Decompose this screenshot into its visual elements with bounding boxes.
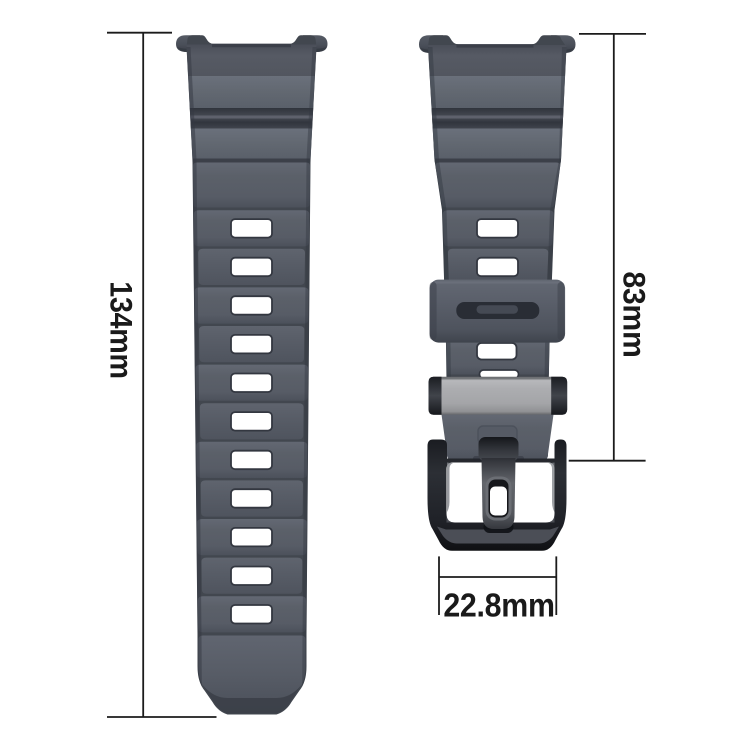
svg-text:83mm: 83mm: [616, 271, 652, 357]
svg-text:22.8mm: 22.8mm: [443, 586, 554, 623]
svg-text:134mm: 134mm: [103, 281, 138, 378]
